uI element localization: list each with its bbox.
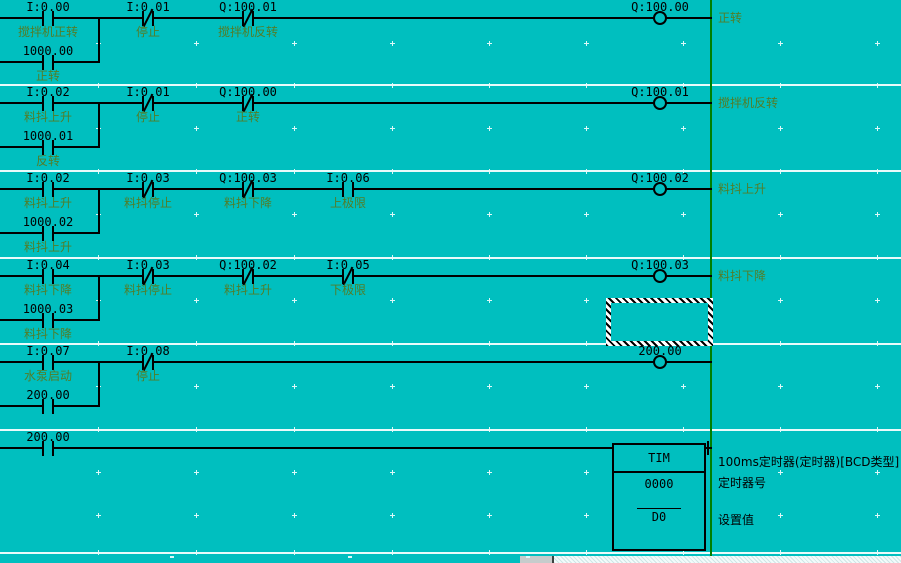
wire-vertical <box>98 189 100 233</box>
timer-box-divider <box>612 471 706 473</box>
contact-address: Q:100.03 <box>219 172 277 185</box>
next-rung-dither <box>554 556 901 563</box>
contact-comment: 下极限 <box>330 284 366 297</box>
contact-address: 1000.00 <box>23 45 74 58</box>
grid-dot <box>392 128 393 129</box>
wire-vertical <box>98 362 100 406</box>
contact-comment: 搅拌机正转 <box>18 26 78 39</box>
grid-dot <box>586 43 587 44</box>
grid-dot <box>294 43 295 44</box>
grid-dot <box>294 214 295 215</box>
grid-dot <box>586 300 587 301</box>
grid-dot <box>392 515 393 516</box>
contact-comment: 搅拌机反转 <box>218 26 278 39</box>
grid-dot <box>196 472 197 473</box>
ladder-editor-canvas[interactable]: 1000.00正转I:0.00搅拌机正转I:0.01停止Q:100.01搅拌机反… <box>0 0 901 563</box>
contact-address: I:0.00 <box>26 1 69 14</box>
timer-annotation: 定时器号 <box>718 477 766 490</box>
contact-comment: 料抖下降 <box>24 328 72 341</box>
contact-comment: 料抖停止 <box>124 284 172 297</box>
contact-comment: 料抖上升 <box>24 197 72 210</box>
contact-address: I:0.06 <box>326 172 369 185</box>
grid-dot <box>489 472 490 473</box>
wire-vertical <box>707 441 709 455</box>
grid-dot <box>196 128 197 129</box>
grid-dot <box>780 43 781 44</box>
contact-comment: 停止 <box>136 370 160 383</box>
contact-comment: 料抖上升 <box>24 241 72 254</box>
grid-dot <box>489 515 490 516</box>
grid-dot <box>683 214 684 215</box>
coil-address: Q:100.03 <box>631 259 689 272</box>
contact-comment: 正转 <box>36 70 60 83</box>
contact-address: 1000.02 <box>23 216 74 229</box>
grid-dot <box>877 472 878 473</box>
grid-dot <box>392 214 393 215</box>
contact-address: I:0.04 <box>26 259 69 272</box>
timer-annotation: 100ms定时器(定时器)[BCD类型] <box>718 456 899 469</box>
grid-dot <box>196 214 197 215</box>
grid-dot <box>780 472 781 473</box>
rung-output-comment: 正转 <box>718 12 742 25</box>
grid-dot <box>489 214 490 215</box>
contact-address: Q:100.00 <box>219 86 277 99</box>
grid-dot <box>196 515 197 516</box>
wire-horizontal <box>0 361 712 363</box>
contact-address: 1000.01 <box>23 130 74 143</box>
grid-dot <box>877 43 878 44</box>
grid-dot <box>877 300 878 301</box>
contact-comment: 停止 <box>136 26 160 39</box>
bottom-grid-tick <box>348 556 352 558</box>
grid-dot <box>683 386 684 387</box>
grid-dot <box>780 214 781 215</box>
contact-address: I:0.01 <box>126 86 169 99</box>
grid-dot <box>877 214 878 215</box>
coil-address: 200.00 <box>638 345 681 358</box>
wire-horizontal <box>0 17 712 19</box>
grid-dot <box>877 128 878 129</box>
wire-vertical <box>98 276 100 320</box>
contact-address: I:0.07 <box>26 345 69 358</box>
grid-dot <box>196 43 197 44</box>
grid-dot <box>489 386 490 387</box>
grid-dot <box>780 300 781 301</box>
grid-dot <box>98 515 99 516</box>
rung-output-comment: 料抖上升 <box>718 183 766 196</box>
timer-mnemonic: TIM <box>648 452 670 465</box>
grid-dot <box>392 472 393 473</box>
contact-address: Q:100.02 <box>219 259 277 272</box>
contact-address: 200.00 <box>26 431 69 444</box>
grid-dot <box>489 128 490 129</box>
grid-dot <box>877 386 878 387</box>
grid-dot <box>586 128 587 129</box>
contact-address: 1000.03 <box>23 303 74 316</box>
coil-address: Q:100.01 <box>631 86 689 99</box>
rung-separator <box>0 429 901 431</box>
wire-horizontal <box>0 447 614 449</box>
grid-dot <box>683 43 684 44</box>
contact-comment: 料抖上升 <box>24 111 72 124</box>
contact-address: I:0.03 <box>126 259 169 272</box>
grid-dot <box>196 300 197 301</box>
grid-dot <box>98 472 99 473</box>
contact-address: I:0.08 <box>126 345 169 358</box>
coil-address: Q:100.00 <box>631 1 689 14</box>
grid-dot <box>877 515 878 516</box>
timer-annotation: 设置值 <box>718 514 754 527</box>
grid-dot <box>586 472 587 473</box>
contact-comment: 上极限 <box>330 197 366 210</box>
grid-dot <box>294 300 295 301</box>
coil-address: Q:100.02 <box>631 172 689 185</box>
grid-dot <box>586 214 587 215</box>
contact-comment: 料抖停止 <box>124 197 172 210</box>
contact-comment: 反转 <box>36 155 60 168</box>
grid-dot <box>489 300 490 301</box>
grid-dot <box>196 386 197 387</box>
grid-dot <box>392 300 393 301</box>
contact-comment: 料抖上升 <box>224 284 272 297</box>
grid-dot <box>489 43 490 44</box>
rung-output-comment: 搅拌机反转 <box>718 97 778 110</box>
contact-comment: 料抖下降 <box>224 197 272 210</box>
wire-horizontal <box>0 188 712 190</box>
grid-dot <box>780 128 781 129</box>
contact-comment: 料抖下降 <box>24 284 72 297</box>
contact-address: I:0.02 <box>26 86 69 99</box>
contact-comment: 停止 <box>136 111 160 124</box>
contact-comment: 正转 <box>236 111 260 124</box>
grid-dot <box>683 128 684 129</box>
contact-address: I:0.02 <box>26 172 69 185</box>
timer-number-operand: 0000 <box>645 478 674 491</box>
next-rung-margin-block <box>520 556 553 563</box>
grid-dot <box>586 515 587 516</box>
grid-dot <box>294 472 295 473</box>
contact-address: I:0.05 <box>326 259 369 272</box>
grid-dot <box>294 386 295 387</box>
rung-output-comment: 料抖下降 <box>718 270 766 283</box>
contact-address: Q:100.01 <box>219 1 277 14</box>
timer-setvalue-overline <box>637 508 681 509</box>
bottom-grid-tick <box>526 556 530 558</box>
grid-dot <box>294 128 295 129</box>
grid-dot <box>780 386 781 387</box>
contact-address: 200.00 <box>26 389 69 402</box>
right-bus-bar <box>710 0 712 563</box>
contact-address: I:0.01 <box>126 1 169 14</box>
selection-cursor-inner <box>611 303 708 341</box>
wire-horizontal <box>0 102 712 104</box>
grid-dot <box>392 386 393 387</box>
grid-dot <box>392 43 393 44</box>
bottom-grid-tick <box>170 556 174 558</box>
grid-dot <box>780 515 781 516</box>
contact-address: I:0.03 <box>126 172 169 185</box>
grid-dot <box>586 386 587 387</box>
wire-vertical <box>98 103 100 147</box>
wire-horizontal <box>0 275 712 277</box>
contact-comment: 水泵启动 <box>24 370 72 383</box>
timer-setvalue-operand: D0 <box>652 511 666 524</box>
wire-vertical <box>98 18 100 62</box>
grid-dot <box>294 515 295 516</box>
rung-separator <box>0 552 901 554</box>
